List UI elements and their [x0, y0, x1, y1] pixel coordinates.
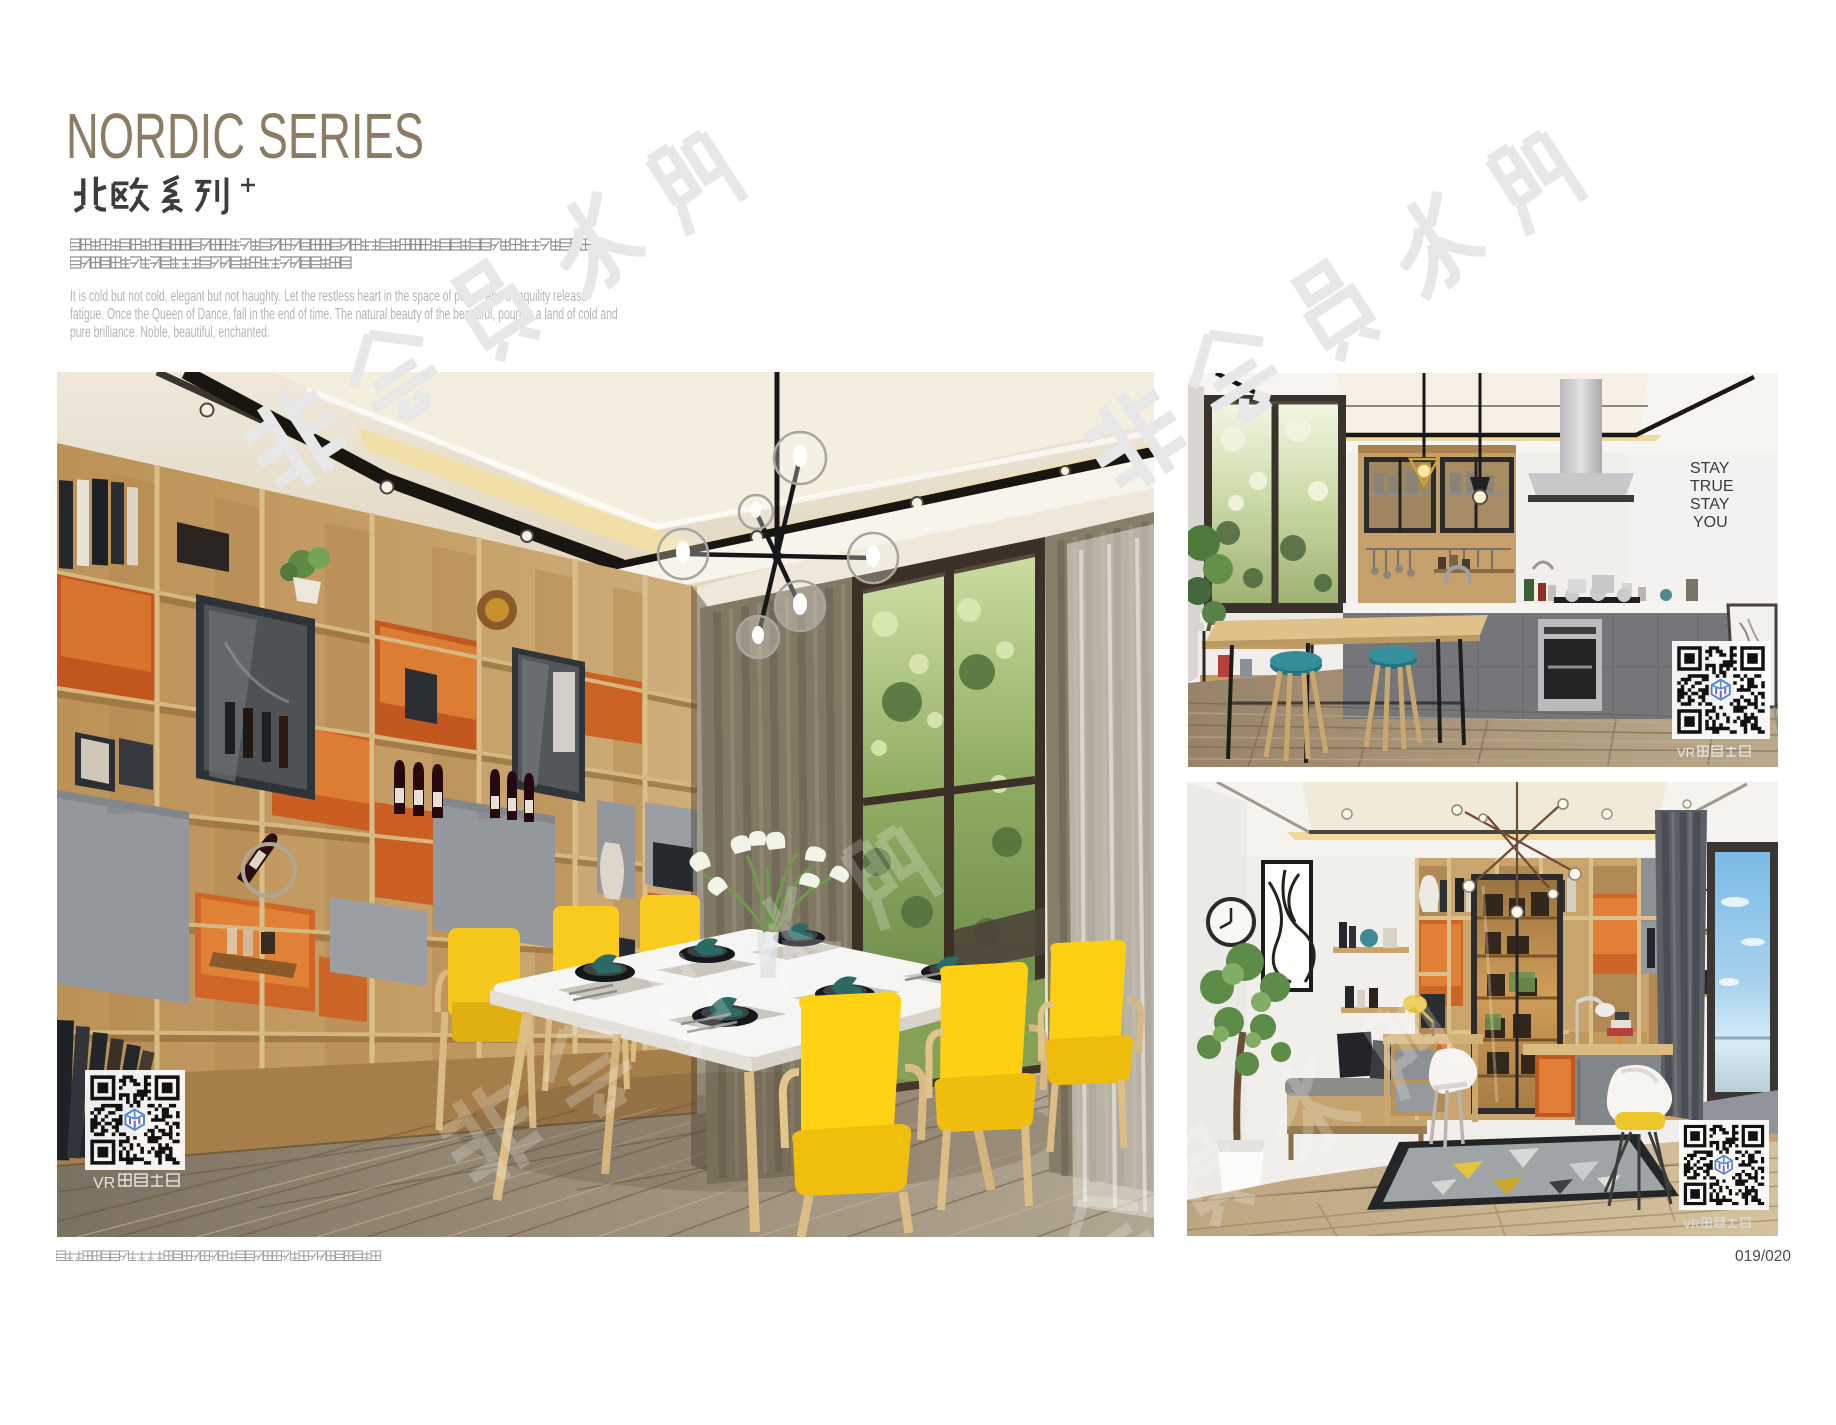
svg-text:VR: VR: [1677, 745, 1695, 760]
svg-text:VR: VR: [1683, 1217, 1700, 1231]
svg-text:STAY: STAY: [1690, 496, 1730, 513]
svg-text:VR: VR: [93, 1175, 115, 1192]
svg-text:YOU: YOU: [1693, 514, 1728, 531]
svg-text:TRUE: TRUE: [1690, 478, 1734, 495]
svg-text:STAY: STAY: [1690, 460, 1730, 477]
